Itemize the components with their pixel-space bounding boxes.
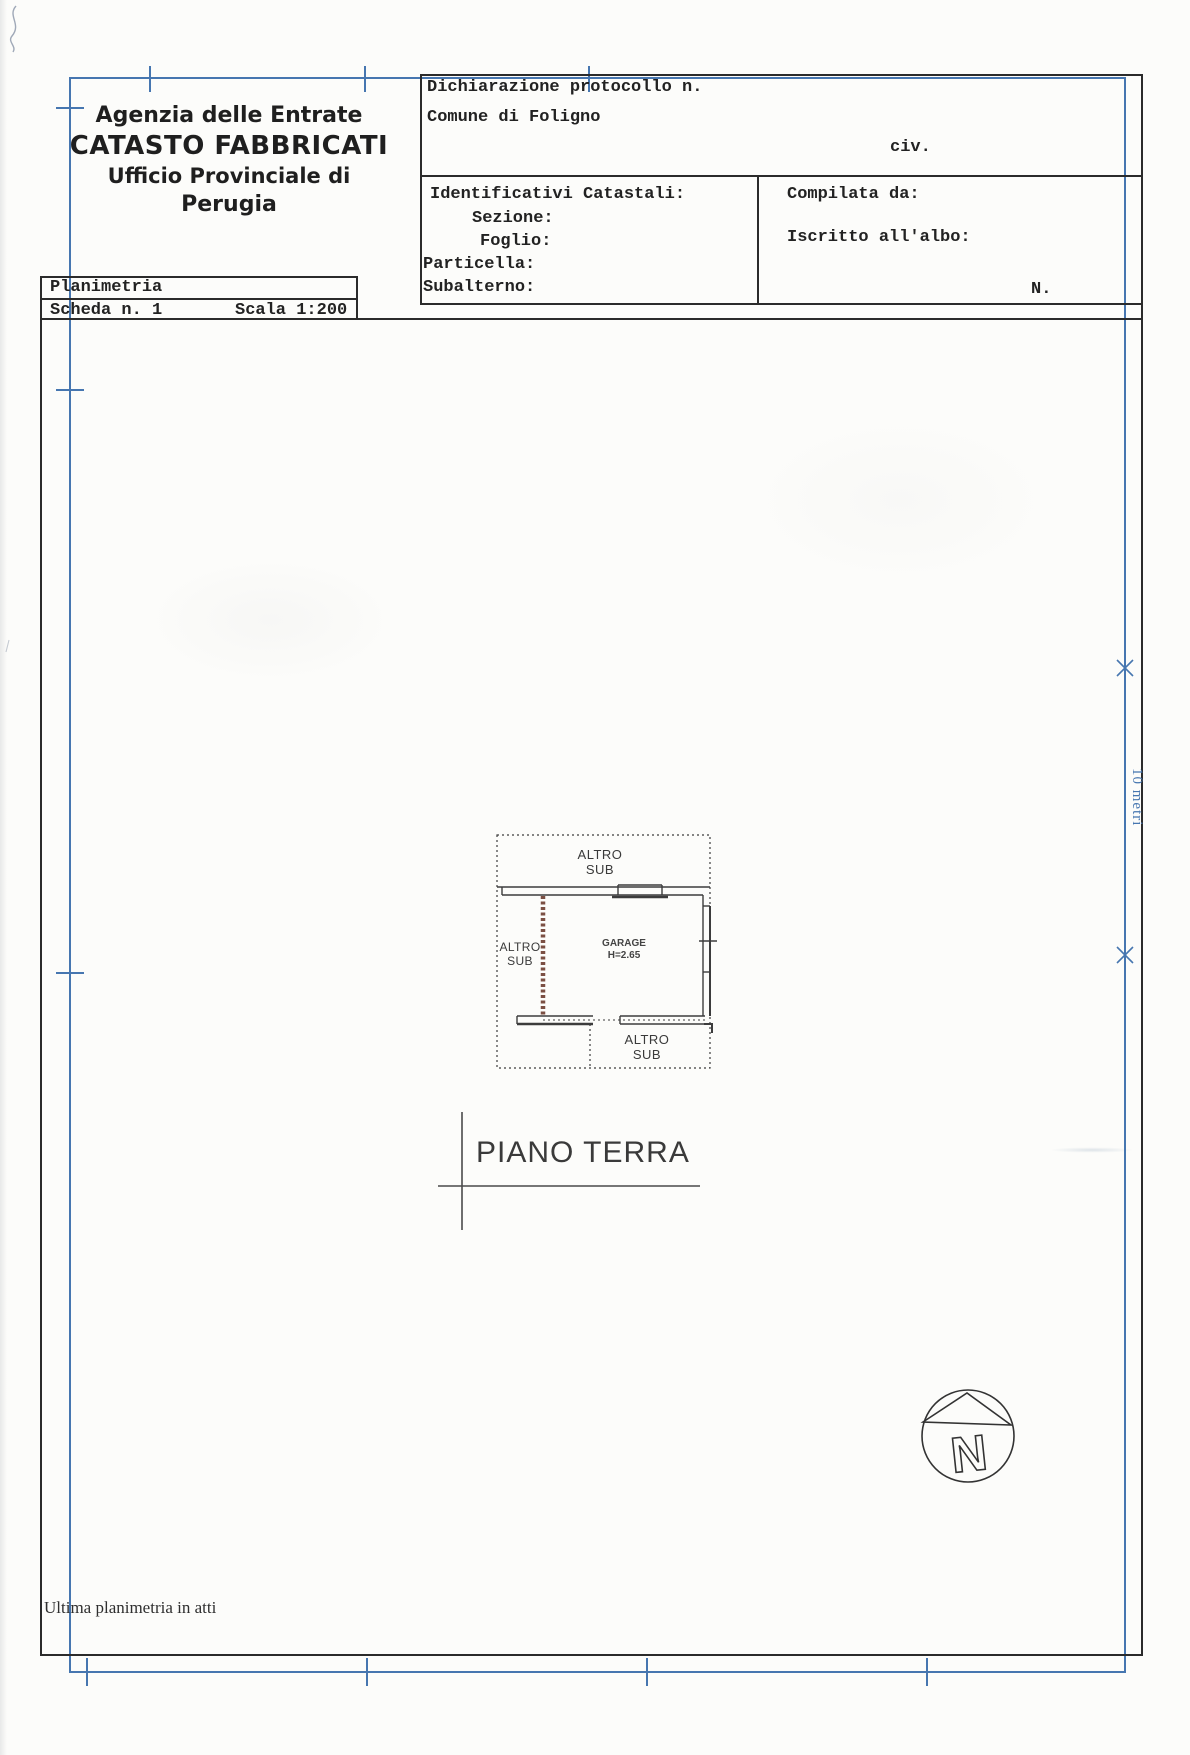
office-line: Ufficio Provinciale di bbox=[58, 162, 400, 190]
north-arrow-icon: N bbox=[922, 1390, 1014, 1484]
footer-note: Ultima planimetria in atti bbox=[44, 1598, 216, 1618]
cadastral-identifiers-cell: Identificativi Catastali: Sezione: Fogli… bbox=[422, 177, 759, 303]
garage-label: GARAGE H=2.65 bbox=[584, 938, 664, 962]
comune-label: Comune di Foligno bbox=[427, 108, 600, 127]
protocol-label: Dichiarazione protocollo n. bbox=[427, 78, 702, 97]
north-letter: N bbox=[948, 1424, 990, 1483]
registry-name: CATASTO FABBRICATI bbox=[58, 130, 400, 162]
altro-sub-label-bottom: ALTRO SUB bbox=[607, 1032, 687, 1062]
pencil-scan-mark bbox=[6, 6, 16, 652]
province-name: Perugia bbox=[58, 190, 400, 220]
sheet-number: Scheda n. 1 bbox=[50, 301, 162, 321]
altro-sub-label-top: ALTRO SUB bbox=[560, 847, 640, 877]
particella-label: Particella: bbox=[423, 255, 535, 274]
declaration-row: Dichiarazione protocollo n. Comune di Fo… bbox=[422, 76, 1141, 177]
iscritto-label: Iscritto all'albo: bbox=[787, 228, 971, 247]
agency-header: Agenzia delle Entrate CATASTO FABBRICATI… bbox=[58, 102, 400, 220]
declaration-table: Dichiarazione protocollo n. Comune di Fo… bbox=[420, 74, 1143, 305]
altro-sub-label-left: ALTRO SUB bbox=[494, 940, 546, 968]
civ-label: civ. bbox=[890, 138, 931, 157]
compiler-cell: Compilata da: Iscritto all'albo: N. bbox=[759, 177, 1141, 303]
drawing-scale: Scala 1:200 bbox=[235, 301, 347, 321]
cadastral-title: Identificativi Catastali: bbox=[430, 185, 685, 204]
subalterno-label: Subalterno: bbox=[423, 278, 535, 297]
scale-bar-label: 10 metri bbox=[1128, 768, 1145, 863]
planimetria-title: Planimetria bbox=[42, 278, 356, 300]
number-label: N. bbox=[1031, 280, 1051, 299]
agency-name: Agenzia delle Entrate bbox=[58, 102, 400, 130]
floor-title-axis-lines bbox=[438, 1112, 700, 1230]
sezione-label: Sezione: bbox=[472, 209, 554, 228]
identifiers-row: Identificativi Catastali: Sezione: Fogli… bbox=[422, 177, 1141, 303]
foglio-label: Foglio: bbox=[480, 232, 551, 251]
compilata-label: Compilata da: bbox=[787, 185, 920, 204]
floor-title: PIANO TERRA bbox=[476, 1136, 690, 1170]
cadastral-document-page: N Agenzia delle Entrate CATASTO FABBRICA… bbox=[0, 0, 1190, 1755]
planimetria-card: Planimetria Scheda n. 1 Scala 1:200 bbox=[40, 276, 358, 320]
